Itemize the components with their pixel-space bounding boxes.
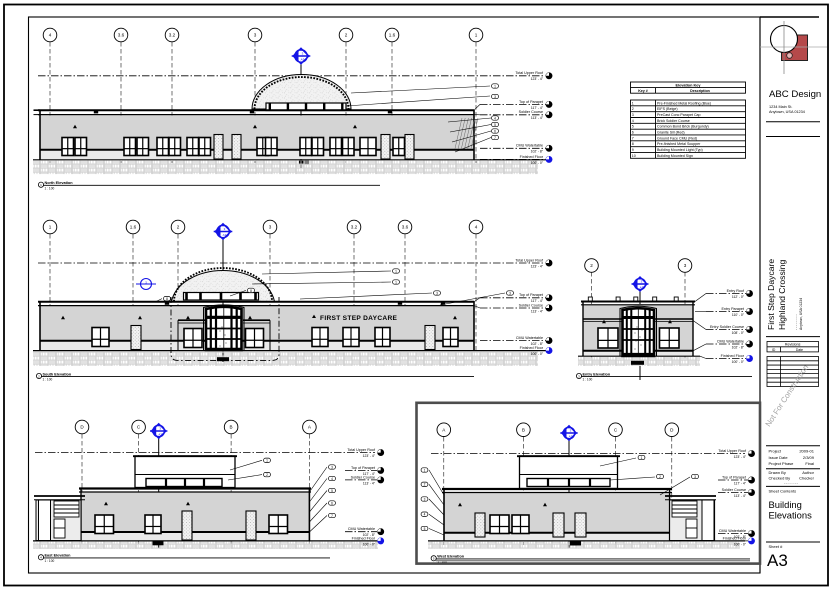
svg-text:4: 4 bbox=[331, 477, 333, 481]
svg-text:1: 1 bbox=[424, 468, 426, 472]
svg-text:3: 3 bbox=[494, 95, 496, 99]
svg-text:4: 4 bbox=[632, 119, 634, 123]
svg-text:FIRST STEP DAYCARE: FIRST STEP DAYCARE bbox=[320, 315, 398, 322]
svg-text:Sheet Contents: Sheet Contents bbox=[769, 488, 797, 493]
svg-text:1 : 100: 1 : 100 bbox=[45, 559, 55, 563]
svg-text:113' - 4": 113' - 4" bbox=[734, 494, 747, 498]
svg-text:3.2: 3.2 bbox=[169, 33, 176, 38]
svg-text:100' - 0": 100' - 0" bbox=[734, 542, 747, 546]
svg-text:2: 2 bbox=[424, 483, 426, 487]
svg-text:Anytown, USA 01234: Anytown, USA 01234 bbox=[799, 298, 803, 330]
svg-text:Anytown, USA 01234: Anytown, USA 01234 bbox=[769, 110, 805, 114]
svg-text:100' - 0": 100' - 0" bbox=[363, 542, 376, 546]
svg-text:4: 4 bbox=[424, 513, 426, 517]
svg-text:Ground Face CMU (Red): Ground Face CMU (Red) bbox=[657, 136, 697, 140]
svg-text:Checked By: Checked By bbox=[769, 476, 791, 481]
svg-text:100' - 0": 100' - 0" bbox=[732, 360, 745, 364]
svg-text:First Step Daycare: First Step Daycare bbox=[766, 259, 776, 330]
svg-text:113' - 4": 113' - 4" bbox=[531, 309, 544, 313]
svg-text:Soldier Course: Soldier Course bbox=[351, 475, 375, 479]
svg-text:CMU Watertable: CMU Watertable bbox=[717, 339, 744, 343]
svg-text:3: 3 bbox=[632, 113, 634, 117]
svg-text:117' - 4": 117' - 4" bbox=[734, 481, 747, 485]
svg-text:123' - 4": 123' - 4" bbox=[531, 264, 544, 268]
svg-text:8: 8 bbox=[166, 297, 168, 301]
svg-text:3: 3 bbox=[509, 291, 511, 295]
svg-text:Total Upper Roof: Total Upper Roof bbox=[347, 448, 376, 452]
svg-text:Top of Parapet: Top of Parapet bbox=[351, 466, 375, 470]
svg-text:CMU Watertable: CMU Watertable bbox=[719, 529, 746, 533]
svg-text:117' - 4": 117' - 4" bbox=[531, 106, 544, 110]
svg-text:CMU Watertable: CMU Watertable bbox=[516, 336, 543, 340]
svg-text:Elevations: Elevations bbox=[769, 510, 813, 521]
svg-text:Finished Floor: Finished Floor bbox=[721, 354, 745, 358]
svg-text:1: 1 bbox=[641, 456, 643, 460]
svg-text:Common Bond Brick (Burgundy): Common Bond Brick (Burgundy) bbox=[657, 125, 709, 129]
svg-text:1: 1 bbox=[632, 101, 634, 105]
svg-text:A3: A3 bbox=[767, 551, 788, 570]
svg-text:Elevation Key: Elevation Key bbox=[676, 83, 702, 87]
svg-text:1.6: 1.6 bbox=[389, 33, 396, 38]
svg-text:East Elevation: East Elevation bbox=[45, 554, 72, 558]
svg-text:5: 5 bbox=[424, 527, 426, 531]
svg-text:4: 4 bbox=[49, 33, 52, 38]
svg-text:1 : 100: 1 : 100 bbox=[43, 378, 53, 382]
svg-text:2: 2 bbox=[590, 263, 593, 268]
svg-text:3: 3 bbox=[694, 475, 696, 479]
svg-text:Finished Floor: Finished Floor bbox=[352, 536, 376, 540]
svg-text:3.6: 3.6 bbox=[118, 33, 125, 38]
svg-text:113' - 4": 113' - 4" bbox=[531, 116, 544, 120]
svg-text:Building Mounted Sign: Building Mounted Sign bbox=[657, 154, 693, 158]
svg-text:Drawn By: Drawn By bbox=[769, 470, 786, 475]
svg-text:3: 3 bbox=[436, 291, 438, 295]
svg-text:Entry Roof: Entry Roof bbox=[727, 289, 745, 293]
svg-text:Date: Date bbox=[796, 348, 803, 352]
svg-text:123' - 4": 123' - 4" bbox=[531, 77, 544, 81]
svg-text:CMU Watertable: CMU Watertable bbox=[516, 144, 543, 148]
svg-text:5: 5 bbox=[632, 125, 634, 129]
svg-text:Key #: Key # bbox=[638, 89, 648, 93]
svg-text:5: 5 bbox=[494, 123, 496, 127]
svg-text:Top of Parapet: Top of Parapet bbox=[722, 475, 746, 479]
svg-text:Final: Final bbox=[805, 461, 814, 466]
svg-text:Revisions: Revisions bbox=[785, 343, 801, 347]
svg-text:10: 10 bbox=[632, 154, 636, 158]
svg-text:3: 3 bbox=[331, 465, 333, 469]
svg-text:Building Mounted Light (Typ): Building Mounted Light (Typ) bbox=[657, 148, 703, 152]
svg-text:8: 8 bbox=[632, 142, 634, 146]
svg-text:7: 7 bbox=[331, 514, 333, 518]
svg-text:Pre-finished Metal Scupper: Pre-finished Metal Scupper bbox=[657, 142, 701, 146]
svg-text:3: 3 bbox=[684, 263, 687, 268]
svg-text:B: B bbox=[522, 427, 525, 432]
svg-text:2: 2 bbox=[177, 225, 180, 230]
svg-text:Brick Soldier Course: Brick Soldier Course bbox=[657, 119, 690, 123]
svg-text:ID: ID bbox=[772, 348, 776, 352]
svg-text:123' - 4": 123' - 4" bbox=[363, 454, 376, 458]
svg-text:Total Upper Roof: Total Upper Roof bbox=[515, 258, 544, 262]
svg-text:Finished Floor: Finished Floor bbox=[520, 346, 544, 350]
svg-text:113' - 4": 113' - 4" bbox=[363, 481, 376, 485]
svg-text:1: 1 bbox=[494, 84, 496, 88]
svg-text:1 : 100: 1 : 100 bbox=[583, 378, 593, 382]
svg-text:110' - 0": 110' - 0" bbox=[732, 313, 745, 317]
svg-text:1234 Main St.: 1234 Main St. bbox=[769, 105, 792, 109]
svg-text:1: 1 bbox=[475, 33, 478, 38]
svg-text:Author: Author bbox=[802, 470, 814, 475]
svg-text:3.2: 3.2 bbox=[351, 225, 358, 230]
svg-text:A3: A3 bbox=[569, 435, 573, 439]
svg-text:2/3/09: 2/3/09 bbox=[803, 455, 815, 460]
svg-text:Entry Parapet: Entry Parapet bbox=[721, 307, 744, 311]
svg-text:6: 6 bbox=[494, 129, 496, 133]
svg-text:1: 1 bbox=[266, 459, 268, 463]
svg-text:108' - 0": 108' - 0" bbox=[732, 331, 745, 335]
svg-text:3: 3 bbox=[424, 497, 426, 501]
svg-text:A3: A3 bbox=[158, 433, 162, 437]
svg-text:B: B bbox=[230, 425, 233, 430]
svg-text:Total Upper Roof: Total Upper Roof bbox=[718, 449, 747, 453]
svg-text:Soldier Course: Soldier Course bbox=[519, 303, 543, 307]
svg-text:1 : 100: 1 : 100 bbox=[45, 186, 55, 190]
svg-text:- - - - - - - -: - - - - - - - - bbox=[794, 314, 798, 330]
svg-text:7: 7 bbox=[632, 136, 634, 140]
svg-text:102' - 8": 102' - 8" bbox=[732, 345, 745, 349]
svg-text:A3: A3 bbox=[301, 58, 305, 62]
svg-text:Description: Description bbox=[690, 89, 710, 93]
svg-text:Soldier Course: Soldier Course bbox=[519, 110, 543, 114]
svg-text:2009-01: 2009-01 bbox=[799, 449, 814, 454]
svg-text:4: 4 bbox=[494, 116, 496, 120]
svg-text:South Elevation: South Elevation bbox=[43, 372, 72, 376]
svg-text:A3: A3 bbox=[640, 286, 644, 290]
svg-text:1: 1 bbox=[395, 280, 397, 284]
svg-text:100' - 0": 100' - 0" bbox=[531, 161, 544, 165]
svg-text:Highland Crossing: Highland Crossing bbox=[777, 260, 787, 330]
svg-text:Sheet #: Sheet # bbox=[769, 544, 784, 549]
svg-text:123' - 4": 123' - 4" bbox=[734, 455, 747, 459]
svg-text:CMU Watertable: CMU Watertable bbox=[348, 527, 375, 531]
svg-text:100' - 0": 100' - 0" bbox=[531, 352, 544, 356]
svg-text:Soldier Course: Soldier Course bbox=[722, 488, 746, 492]
svg-text:6: 6 bbox=[331, 501, 333, 505]
svg-text:2: 2 bbox=[266, 473, 268, 477]
svg-text:2: 2 bbox=[632, 107, 634, 111]
svg-text:4: 4 bbox=[475, 225, 478, 230]
svg-text:West Elevation: West Elevation bbox=[437, 555, 465, 559]
svg-text:5: 5 bbox=[331, 489, 333, 493]
svg-text:Project Phase: Project Phase bbox=[769, 461, 795, 466]
svg-text:Entry Soldier Course: Entry Soldier Course bbox=[710, 325, 744, 329]
svg-text:A3: A3 bbox=[223, 233, 227, 237]
svg-text:Granite Sill (Red): Granite Sill (Red) bbox=[657, 130, 685, 134]
svg-text:7: 7 bbox=[494, 136, 496, 140]
svg-text:EIFS (Beige): EIFS (Beige) bbox=[657, 107, 678, 111]
svg-text:6: 6 bbox=[632, 130, 634, 134]
svg-text:Top of Parapet: Top of Parapet bbox=[519, 100, 543, 104]
svg-text:3.6: 3.6 bbox=[402, 225, 409, 230]
svg-text:1: 1 bbox=[49, 225, 52, 230]
svg-text:North Elevation: North Elevation bbox=[45, 181, 74, 185]
svg-text:102' - 8": 102' - 8" bbox=[531, 150, 544, 154]
svg-text:Building: Building bbox=[769, 499, 802, 510]
svg-text:Top of Parapet: Top of Parapet bbox=[519, 293, 543, 297]
svg-text:PreCast Conc Parapet Cap: PreCast Conc Parapet Cap bbox=[657, 113, 701, 117]
svg-text:2: 2 bbox=[659, 475, 661, 479]
svg-text:Finished Floor: Finished Floor bbox=[520, 155, 544, 159]
svg-text:9: 9 bbox=[632, 148, 634, 152]
svg-text:2: 2 bbox=[345, 33, 348, 38]
svg-text:Project: Project bbox=[769, 449, 782, 454]
svg-text:Checker: Checker bbox=[799, 476, 815, 481]
svg-text:Entry Elevation: Entry Elevation bbox=[583, 372, 611, 376]
svg-text:Issue Date: Issue Date bbox=[769, 455, 789, 460]
svg-text:1: 1 bbox=[395, 269, 397, 273]
svg-text:ABC Design: ABC Design bbox=[769, 89, 821, 100]
svg-text:8: 8 bbox=[250, 289, 252, 293]
svg-text:- - - - - - -: - - - - - - - bbox=[784, 482, 798, 486]
svg-text:3: 3 bbox=[254, 33, 257, 38]
svg-text:3: 3 bbox=[269, 225, 272, 230]
svg-text:Pre-Finished Metal Roofing (Bl: Pre-Finished Metal Roofing (Blue) bbox=[657, 101, 711, 105]
svg-text:1.6: 1.6 bbox=[130, 225, 137, 230]
svg-text:112' - 0": 112' - 0" bbox=[732, 295, 745, 299]
svg-text:Finished Floor: Finished Floor bbox=[723, 536, 747, 540]
svg-text:Total Upper Roof: Total Upper Roof bbox=[515, 71, 544, 75]
